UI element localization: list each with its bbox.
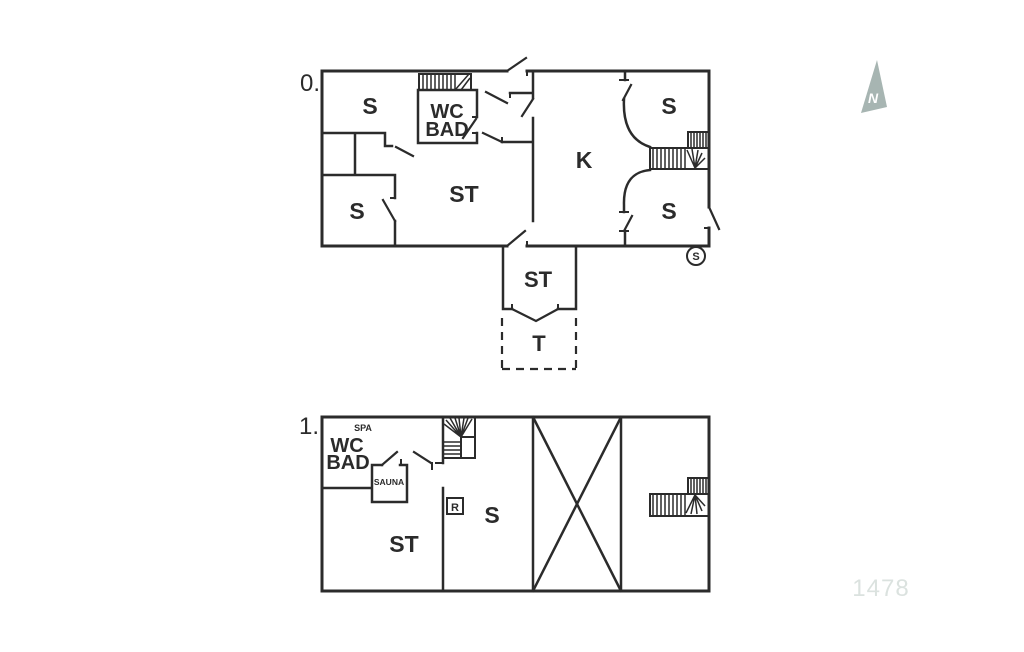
room-label-s-bottom-right: S — [661, 198, 676, 224]
floor1-door-leaves — [382, 452, 431, 465]
room-label-s-top-left: S — [362, 93, 377, 119]
room-label-s-bottom-left: S — [349, 198, 364, 224]
terrace: T — [502, 318, 576, 369]
room-label-st: ST — [449, 181, 478, 207]
room-label-sauna: SAUNA — [374, 477, 404, 487]
floor-plan-page: 0. S WC BAD ST K S S S S ST T — [0, 0, 1024, 652]
room-label-bad-floor1: BAD — [326, 452, 369, 474]
floor0-entry-extension: ST — [503, 246, 576, 321]
floor1-void-cross — [533, 417, 621, 591]
floor0-stairs-top-icon — [419, 74, 471, 90]
room-label-bad: BAD — [425, 119, 468, 141]
floor1-stairs-top-icon — [443, 417, 475, 458]
floor1-r-box: R — [447, 498, 463, 514]
floor0-curved-walls — [624, 99, 650, 212]
floor0-stairs-right-icon — [650, 132, 709, 169]
entry-opening-symbol — [512, 309, 558, 321]
room-label-r: R — [451, 502, 459, 514]
room-label-entry-st: ST — [524, 267, 553, 292]
floor-plan-drawing: 0. S WC BAD ST K S S S S ST T — [0, 0, 1024, 652]
room-label-terrace: T — [532, 331, 546, 356]
room-label-k: K — [576, 147, 593, 173]
floor1-label: 1. — [299, 413, 319, 440]
entry-door-posts — [512, 305, 558, 309]
room-label-s-floor1: S — [484, 502, 499, 528]
plan-number: 1478 — [852, 575, 909, 602]
north-arrow-label: N — [868, 90, 879, 106]
floor0-label: 0. — [300, 70, 320, 97]
floor0-plan: 0. S WC BAD ST K S S S S — [300, 58, 719, 265]
spiral-stair-marker: S — [687, 247, 705, 265]
north-arrow-icon: N — [861, 60, 887, 113]
floor1-plan: R 1. SPA WC BAD SAUNA S ST — [299, 413, 709, 591]
room-label-spa: SPA — [354, 423, 372, 433]
spiral-stair-marker-label: S — [692, 251, 699, 263]
room-label-st-floor1: ST — [389, 531, 418, 557]
floor1-stairs-right-icon — [650, 478, 709, 516]
room-label-s-top-right: S — [661, 93, 676, 119]
